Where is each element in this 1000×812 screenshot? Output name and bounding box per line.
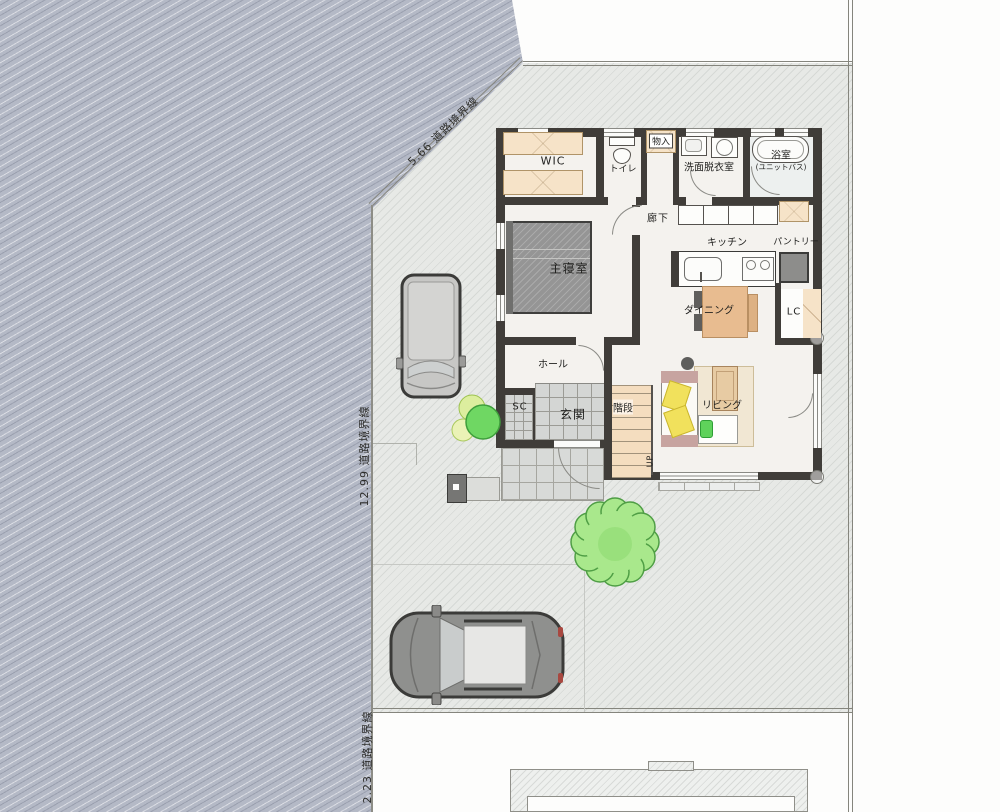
floor-cushion: [700, 420, 713, 438]
wic-shelf: [503, 132, 583, 155]
room-label-hall: ホール: [538, 356, 568, 371]
kitchen-faucet: [700, 272, 702, 282]
window-living-east: [813, 374, 822, 448]
wall: [596, 128, 604, 205]
window: [496, 223, 505, 249]
sofa-arm: [661, 435, 698, 447]
corridor-opening: [647, 197, 673, 205]
pantry-cabinet: [779, 252, 809, 283]
room-label-pantry: パントリー: [773, 235, 818, 248]
boundary-line-east: [848, 0, 853, 812]
stove-burner: [760, 260, 770, 270]
kitchen-counter-end: [671, 251, 679, 287]
corridor-cupboards: [678, 205, 778, 225]
suv-top-view: [388, 605, 568, 705]
van-top-view: [396, 272, 466, 402]
room-label-kitchen: キッチン: [707, 234, 747, 249]
dining-bench: [748, 294, 758, 332]
terrace-step: [658, 482, 760, 491]
boundary-label-west: 12.99 道路境界線: [356, 406, 372, 507]
room-label-dining: ダイニング: [684, 302, 734, 317]
pantry-shelf: [779, 201, 809, 222]
column-marker: [810, 470, 824, 484]
room-label-sc: SC: [512, 402, 527, 413]
sofa-arm: [661, 371, 698, 383]
site-plan: 5.66 道路境界線 12.99 道路境界線 2.23 道路境界線: [0, 0, 1000, 812]
window-living-south: [660, 472, 758, 480]
room-label-master-bedroom: 主寝室: [549, 260, 588, 277]
wall: [496, 337, 640, 345]
room-label-washroom: 洗面脱衣室: [684, 159, 734, 174]
wall: [743, 128, 750, 205]
room-label-storage: 物入: [649, 134, 673, 149]
room-label-toilet: トイレ: [609, 162, 636, 175]
ground-line: [373, 564, 584, 565]
room-label-corridor: 廊下: [647, 210, 669, 225]
room-label-lc: LC: [787, 307, 802, 318]
gate-post-plate: [453, 484, 459, 490]
room-label-wic: WIC: [541, 155, 566, 168]
garden-tree: [570, 497, 660, 587]
room-label-bathroom-sub: (ユニットバス): [756, 162, 807, 173]
wic-shelf: [503, 170, 583, 195]
room-label-living: リビング: [702, 397, 742, 412]
boundary-label-south: 2.23 道路境界線: [359, 711, 375, 804]
neighbor-building-inner: [527, 796, 795, 812]
washing-machine-drum: [716, 139, 733, 156]
kitchen-sink: [684, 257, 722, 281]
bed-sheet-line: [513, 249, 590, 250]
bed-headboard: [506, 221, 513, 314]
window: [496, 295, 505, 321]
boundary-line-south: [373, 708, 852, 713]
ground-step-line: [373, 443, 417, 465]
door-opening: [608, 197, 636, 205]
neighbor-building-bump: [648, 761, 694, 771]
stove-burner: [746, 260, 756, 270]
lc-closet-shelf: [803, 289, 821, 338]
door-opening: [576, 337, 604, 345]
room-label-bathroom: 浴室: [771, 147, 791, 162]
toilet-tank: [609, 137, 635, 146]
door-opening: [686, 197, 712, 205]
boundary-line-north: [523, 61, 852, 66]
room-label-stairs: 階段: [613, 400, 633, 415]
wall: [604, 337, 612, 480]
washbasin-bowl: [685, 139, 702, 152]
window: [604, 128, 634, 137]
stairs-up-label: UP: [646, 455, 655, 468]
room-label-entrance: 玄関: [560, 406, 586, 423]
dining-chair: [694, 314, 702, 331]
side-table: [681, 357, 694, 370]
